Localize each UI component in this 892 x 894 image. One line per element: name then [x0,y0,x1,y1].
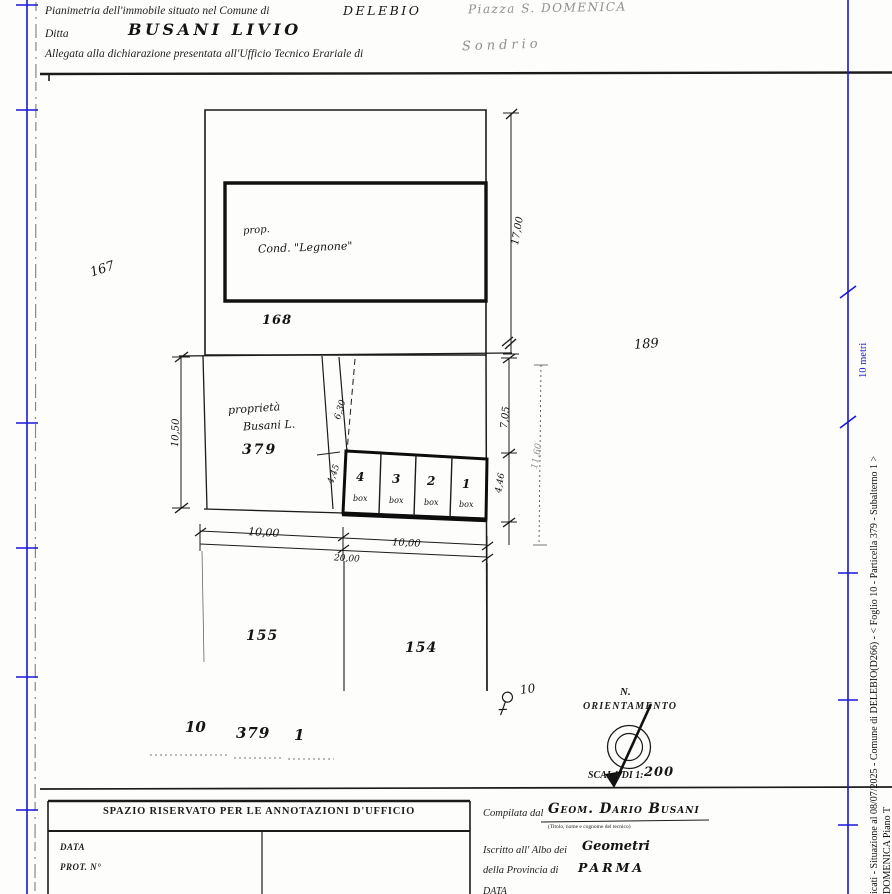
right-ruler [838,0,858,894]
box-3-number: 3 [392,472,400,486]
box-4-number: 4 [356,470,364,484]
ref-foglio: 10 [185,718,206,736]
box-1-label: box [459,500,473,509]
dim-line-right [501,337,517,545]
owner-label-line2: Busani L. [243,418,296,434]
dim-south-right-1000: 10,00 [392,537,421,549]
ditta-value: BUSANI LIVIO [128,20,302,39]
iscritto-label: Iscritto all' Albo dei [483,845,567,856]
scale-10-metri: 10 metri [858,343,869,378]
box-2-label: box [424,498,438,507]
iscritto-value: Geometri [582,839,650,854]
dim-right-705: 7,05 [499,406,512,429]
left-ruler [16,0,38,894]
survey-point-number: 10 [519,681,536,697]
orientation-label: ORIENTAMENTO [583,701,677,712]
plan-bottom-border [40,787,892,789]
parcel-379-label: 379 [242,442,277,458]
ref-particella: 379 [236,724,270,742]
watermark-line2: DOMENICA Piano T [882,807,892,894]
annotations-data-label: DATA [60,842,85,852]
ref-subalterno: 1 [294,726,304,744]
form-title-label: Pianimetria dell'immobile situato nel Co… [45,5,269,17]
ufficio-value: Sondrio [462,37,542,55]
scanned-cadastral-plan-page: Pianimetria dell'immobile situato nel Co… [0,0,892,894]
dim-south-total-2000: 20,00 [334,553,360,564]
allegata-label: Allegata alla dichiarazione presentata a… [45,48,363,60]
box-4-label: box [353,494,367,503]
north-label: N. [620,686,631,698]
strip-lines [317,356,355,509]
parcel-168-label: 168 [262,313,292,328]
building-label-line1: prop. [243,224,270,237]
parcel-189-label: 189 [634,336,660,353]
compilata-value: Geom. Dario Busani [548,801,700,817]
parcel-379-west [203,356,207,509]
parcel-155-label: 155 [246,628,278,644]
annotations-title: SPAZIO RISERVATO PER LE ANNOTAZIONI D'UF… [48,806,470,817]
header-rule [40,73,892,82]
scale-label: SCALA DI 1: [588,770,644,781]
compilata-label: Compilata dal [483,808,543,819]
box-1-number: 1 [462,477,470,491]
refs-underlines [150,755,334,759]
plan-drawing [0,0,892,894]
annotations-prot-label: PROT. N° [60,862,101,872]
signature-underline [541,820,709,822]
dim-west-1050: 10,50 [170,418,182,447]
watermark-line1: icati - Situazione al 08/07/2025 - Comun… [869,456,880,894]
address-value: Piazza S. DOMENICA [468,0,627,16]
parcel-379-south [204,509,344,513]
footer-data2-label: DATA [483,886,507,894]
comune-value: DELEBIO [343,3,421,18]
scale-value: 200 [644,765,674,780]
compilata-note: (Titolo, nome e cognome del tecnico) [548,824,631,830]
survey-point-marker [498,691,514,717]
box-3-label: box [389,496,403,505]
ditta-label: Ditta [45,28,69,40]
lower-west-boundary [202,551,204,662]
dim-south-left-1000: 10,00 [248,525,280,540]
parcel-154-label: 154 [405,640,437,656]
boxes-dividers [379,453,452,518]
scan-fold-line [35,2,36,892]
box-2-number: 2 [427,474,435,488]
provincia-value: PARMA [578,860,645,875]
provincia-label: della Provincia di [483,865,558,876]
